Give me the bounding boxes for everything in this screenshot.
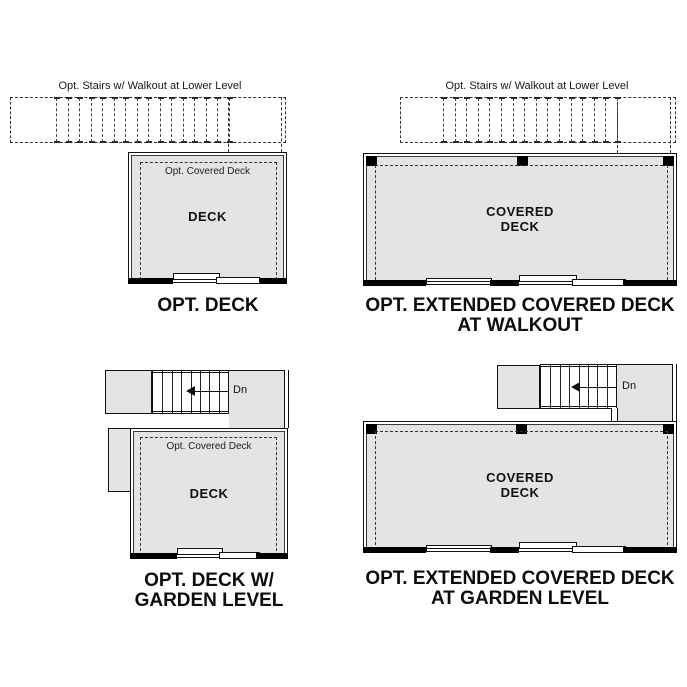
panel-deck-garden-level: Dn Opt. Covered Deck DECK OPT. DECK W/ G…	[0, 340, 340, 687]
room-label: COVERED DECK	[364, 204, 676, 234]
stair-tread-line	[582, 98, 583, 142]
stair-tread-line	[194, 98, 195, 142]
wall-segment	[363, 547, 426, 553]
upper-floor-area	[229, 370, 285, 429]
caption-line: AT WALKOUT	[361, 316, 679, 336]
stair-treads-dashed	[443, 98, 617, 142]
down-arrow-head	[571, 382, 580, 392]
stair-tread-line	[148, 98, 149, 142]
stair-tread-line	[160, 98, 161, 142]
wall-segment	[130, 553, 177, 559]
stair-edge-dashed-line	[617, 97, 618, 153]
wall-segment	[623, 280, 677, 286]
stair-tread-line	[594, 98, 595, 142]
caption-line: OPT. EXTENDED COVERED DECK	[361, 569, 679, 589]
opt-stairs-outline	[10, 97, 286, 143]
stairs-note-label: Opt. Stairs w/ Walkout at Lower Level	[10, 80, 290, 92]
stair-tread-line	[571, 98, 572, 142]
walkout-edge-dashed-line	[281, 97, 282, 152]
stair-tread-line	[162, 371, 163, 413]
stair-tread-line	[171, 98, 172, 142]
stair-tread-line	[91, 98, 92, 142]
stair-tread-line	[181, 371, 182, 413]
caption-line: AT GARDEN LEVEL	[361, 589, 679, 609]
wall-segment	[363, 280, 426, 286]
stair-treads-dashed	[56, 98, 229, 142]
caption-line: OPT. DECK W/	[109, 571, 309, 591]
room-label-line: COVERED	[364, 470, 676, 485]
down-label: Dn	[622, 380, 636, 392]
sliding-door-panel	[177, 548, 223, 555]
floorplan-sheet: Opt. Stairs w/ Walkout at Lower Level Op…	[0, 0, 687, 687]
sliding-door-panel	[572, 546, 626, 553]
stair-tread-line	[478, 98, 479, 142]
panel-caption: OPT. DECK	[118, 296, 298, 316]
stair-landing	[497, 365, 540, 409]
panel-caption: OPT. DECK W/ GARDEN LEVEL	[109, 571, 309, 610]
wall-segment	[128, 278, 173, 284]
sliding-door-panel	[173, 273, 220, 280]
stair-tread-line	[114, 98, 115, 142]
stair-tread-line	[559, 98, 560, 142]
stair-tread-line	[455, 98, 456, 142]
stair-edge-dashed-line	[228, 97, 229, 152]
covered-deck-note: Opt. Covered Deck	[129, 166, 286, 177]
window-opening	[426, 278, 492, 285]
stair-tread-line	[56, 98, 57, 142]
wall-double-line	[284, 370, 289, 428]
room-label-line: DECK	[364, 485, 676, 500]
wall-segment	[490, 547, 519, 553]
wall-segment	[256, 278, 287, 284]
stair-tread-line	[200, 371, 201, 413]
deck-outline: COVERED DECK	[363, 153, 677, 285]
covered-deck-note: Opt. Covered Deck	[131, 441, 287, 452]
stair-landing	[105, 370, 152, 414]
room-label: DECK	[131, 486, 287, 501]
walkout-edge-dashed-line	[670, 97, 671, 153]
panel-extended-covered-deck-walkout: Opt. Stairs w/ Walkout at Lower Level CO…	[340, 0, 687, 340]
panel-opt-deck: Opt. Stairs w/ Walkout at Lower Level Op…	[0, 0, 340, 340]
stair-tread-line	[443, 98, 444, 142]
room-label: DECK	[129, 209, 286, 224]
stair-tread-line	[536, 98, 537, 142]
sliding-door-panel	[219, 552, 260, 559]
stair-tread-line	[209, 371, 210, 413]
stair-tread-line	[513, 98, 514, 142]
opt-stairs-outline	[400, 97, 676, 143]
room-label: COVERED DECK	[364, 470, 676, 500]
panel-caption: OPT. EXTENDED COVERED DECK AT GARDEN LEV…	[361, 569, 679, 608]
panel-extended-covered-deck-garden: Dn COVERED DECK OPT. EXTENDED COVERED DE…	[340, 340, 687, 687]
stair-tread-line	[219, 371, 220, 413]
caption-line: GARDEN LEVEL	[109, 591, 309, 611]
stair-tread-line	[489, 98, 490, 142]
stair-tread-line	[229, 98, 230, 142]
down-label: Dn	[233, 384, 247, 396]
wall-segment	[490, 280, 519, 286]
deck-outline: COVERED DECK	[363, 421, 677, 552]
sliding-door-panel	[519, 275, 577, 282]
stair-tread-line	[560, 365, 561, 408]
stair-tread-line	[79, 98, 80, 142]
stair-tread-line	[125, 98, 126, 142]
stair-tread-line	[137, 98, 138, 142]
wall-segment	[623, 547, 677, 553]
stair-tread-line	[172, 371, 173, 413]
stair-tread-line	[206, 98, 207, 142]
wall-segment	[256, 553, 288, 559]
stair-tread-line	[550, 365, 551, 408]
upper-floor-area	[617, 364, 673, 422]
stair-tread-line	[501, 98, 502, 142]
sliding-door-panel	[519, 542, 577, 549]
room-label-line: COVERED	[364, 204, 676, 219]
room-label-line: DECK	[364, 219, 676, 234]
stair-tread-line	[547, 98, 548, 142]
wall-double-line	[611, 408, 618, 421]
caption-line: OPT. EXTENDED COVERED DECK	[361, 296, 679, 316]
caption-line: OPT. DECK	[118, 296, 298, 316]
down-arrow-line	[580, 387, 617, 388]
down-arrow-line	[195, 391, 229, 392]
window-opening	[426, 545, 492, 552]
deck-outline: Opt. Covered Deck DECK	[128, 152, 287, 283]
stair-tread-line	[217, 98, 218, 142]
sliding-door-panel	[572, 279, 626, 286]
stair-tread-line	[183, 98, 184, 142]
stair-tread-line	[524, 98, 525, 142]
stairs-note-label: Opt. Stairs w/ Walkout at Lower Level	[397, 80, 677, 92]
stair-tread-line	[569, 365, 570, 408]
stair-tread-line	[102, 98, 103, 142]
deck-outline: Opt. Covered Deck DECK	[130, 428, 288, 558]
sliding-door-panel	[216, 277, 260, 284]
stair-tread-line	[68, 98, 69, 142]
down-arrow-head	[186, 386, 195, 396]
panel-caption: OPT. EXTENDED COVERED DECK AT WALKOUT	[361, 296, 679, 335]
stair-tread-line	[466, 98, 467, 142]
wall-double-line	[672, 364, 677, 421]
stair-tread-line	[605, 98, 606, 142]
